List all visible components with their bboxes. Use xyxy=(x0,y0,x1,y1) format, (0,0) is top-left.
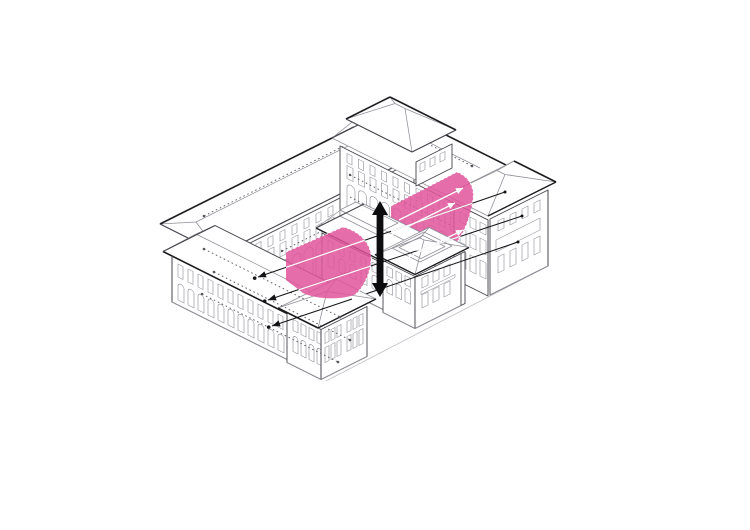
leader-dot xyxy=(471,165,474,168)
leader-dot xyxy=(263,299,267,303)
leader-dot xyxy=(339,316,342,319)
leader-dot xyxy=(267,325,271,329)
leader-dot xyxy=(349,174,351,176)
leader-dot xyxy=(521,215,524,218)
leader-dot xyxy=(504,191,507,194)
diagram-canvas xyxy=(0,0,750,530)
leader-dot xyxy=(281,250,283,252)
leader-dot xyxy=(203,215,206,218)
leader-dot xyxy=(213,271,216,274)
leader-dot xyxy=(201,293,204,296)
axonometric-diagram xyxy=(0,0,750,530)
leader-dot xyxy=(253,276,257,280)
leader-dot xyxy=(337,361,340,364)
leader-dot xyxy=(203,248,206,251)
leader-dot xyxy=(349,339,352,342)
leader-dot xyxy=(517,241,520,244)
